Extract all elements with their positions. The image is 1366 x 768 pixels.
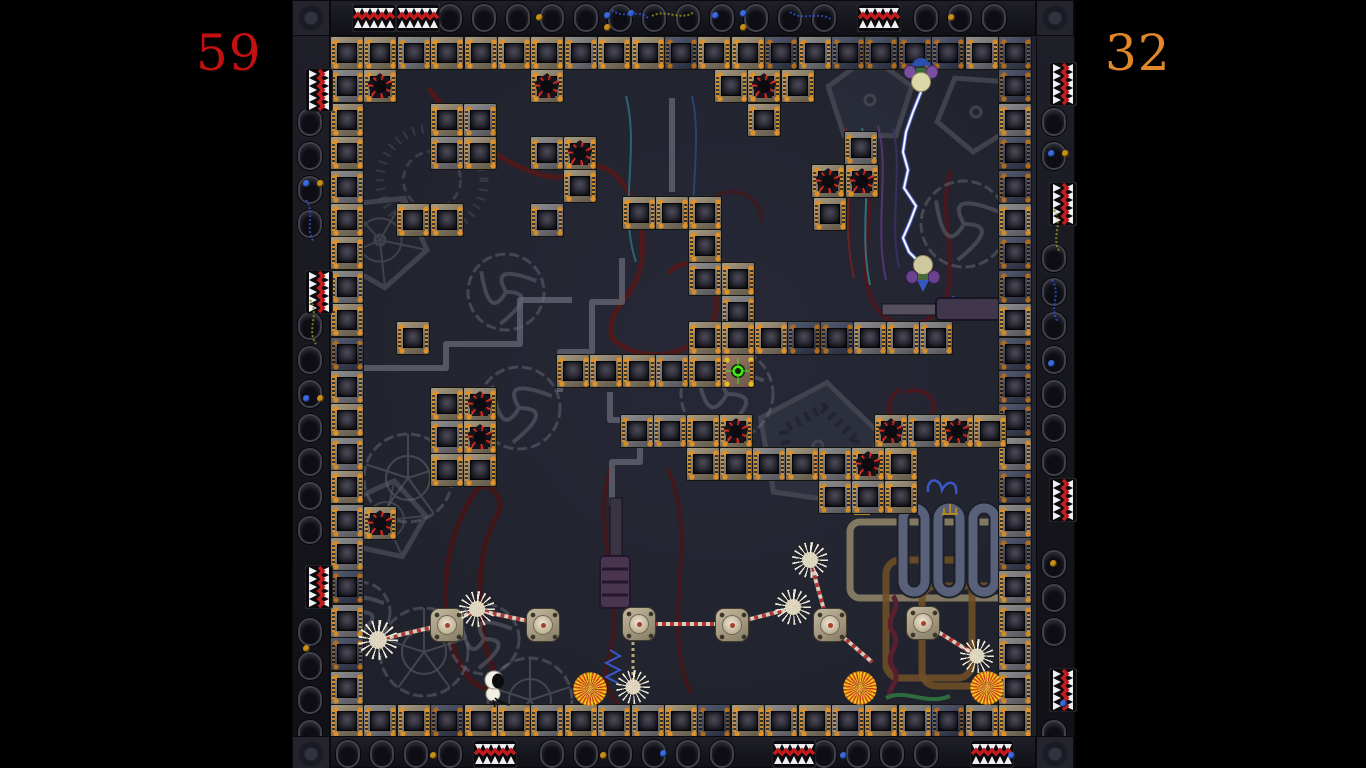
teeth-mouth-icon xyxy=(305,565,333,609)
tile-block xyxy=(853,321,887,355)
tile-hazard-fan xyxy=(747,69,781,103)
tile-center xyxy=(337,444,357,464)
tile-center xyxy=(738,711,758,731)
tile-center xyxy=(938,711,958,731)
tile-block xyxy=(919,321,953,355)
tile-block xyxy=(688,354,722,388)
tile-block xyxy=(998,370,1032,404)
tile-center xyxy=(470,110,490,130)
score-right: 32 xyxy=(1105,24,1171,82)
tile-center xyxy=(337,310,357,330)
tile-center xyxy=(695,203,715,223)
tile-block xyxy=(785,447,819,481)
tile-block xyxy=(430,136,464,170)
border-capsule xyxy=(744,4,768,32)
tile-block xyxy=(965,704,999,738)
teeth-mouth-icon xyxy=(772,740,816,768)
tile-block xyxy=(430,420,464,454)
border-corner xyxy=(292,736,330,768)
amber-dot-icon xyxy=(317,180,324,187)
tile-block xyxy=(330,36,364,70)
tile-center xyxy=(537,43,557,63)
border-capsule xyxy=(298,210,322,238)
tile-center xyxy=(537,711,557,731)
border-capsule xyxy=(506,4,530,32)
tile-block xyxy=(998,470,1032,504)
tile-block xyxy=(998,704,1032,738)
tile-block xyxy=(597,704,631,738)
tile-block xyxy=(397,704,431,738)
blue-dot-icon xyxy=(1048,150,1055,157)
teeth-mouth xyxy=(1049,478,1077,522)
border-capsule xyxy=(574,740,598,768)
tile-block xyxy=(396,321,430,355)
tile-center xyxy=(771,43,791,63)
tile-block xyxy=(330,136,364,170)
tile-block xyxy=(330,437,364,471)
tile-block xyxy=(564,36,598,70)
tile-block xyxy=(864,36,898,70)
border-capsule xyxy=(676,4,700,32)
tile-center xyxy=(1005,611,1025,631)
tile-block xyxy=(798,704,832,738)
tile-center xyxy=(914,421,934,441)
pod-tile xyxy=(906,606,940,640)
tile-block xyxy=(787,321,821,355)
tile-block xyxy=(622,196,656,230)
tile-block xyxy=(864,704,898,738)
tile-center xyxy=(337,76,357,96)
tile-block xyxy=(330,303,364,337)
tile-center xyxy=(627,421,647,441)
tile-block xyxy=(589,354,623,388)
tile-block xyxy=(820,321,854,355)
tile-center xyxy=(1005,110,1025,130)
tile-block xyxy=(998,337,1032,371)
border-capsule xyxy=(812,4,836,32)
tile-center xyxy=(337,344,357,364)
tile-center xyxy=(504,43,524,63)
amber-dot-icon xyxy=(1062,150,1069,157)
tile-center xyxy=(437,394,457,414)
tile-block xyxy=(898,704,932,738)
tile-center xyxy=(893,328,913,348)
tile-center xyxy=(662,361,682,381)
border-capsule xyxy=(298,414,322,442)
amber-dot-icon xyxy=(430,752,437,759)
tile-center xyxy=(563,361,583,381)
tile-center xyxy=(403,210,423,230)
tile-center xyxy=(470,143,490,163)
tile-center xyxy=(1005,644,1025,664)
tile-block xyxy=(655,354,689,388)
tile-block xyxy=(998,103,1032,137)
tile-exit-circuit xyxy=(721,354,755,388)
border-corner xyxy=(1036,736,1074,768)
tile-block xyxy=(597,36,631,70)
border-capsule xyxy=(298,312,322,340)
blue-dot-icon xyxy=(660,750,667,757)
tile-center xyxy=(571,711,591,731)
tile-block xyxy=(731,704,765,738)
tile-center xyxy=(471,43,491,63)
tile-center xyxy=(825,487,845,507)
tile-block xyxy=(430,36,464,70)
tile-block xyxy=(764,36,798,70)
tile-block xyxy=(330,236,364,270)
tile-center xyxy=(838,43,858,63)
tile-block xyxy=(851,480,885,514)
border-capsule xyxy=(1042,618,1066,646)
border-capsule xyxy=(1042,312,1066,340)
tile-block xyxy=(430,103,464,137)
tile-center xyxy=(972,711,992,731)
tile-center xyxy=(337,544,357,564)
tile-block xyxy=(463,103,497,137)
border-capsule xyxy=(298,618,322,646)
tile-center xyxy=(805,43,825,63)
tile-block xyxy=(330,69,364,103)
tile-block xyxy=(998,537,1032,571)
border-capsule xyxy=(298,652,322,680)
tile-center xyxy=(827,328,847,348)
tile-center xyxy=(871,43,891,63)
border-capsule xyxy=(676,740,700,768)
tile-center xyxy=(761,328,781,348)
teeth-mouth-icon xyxy=(305,68,333,112)
tile-block xyxy=(430,453,464,487)
player-creature[interactable] xyxy=(482,670,514,708)
spike-mine xyxy=(960,639,994,673)
tile-block xyxy=(430,203,464,237)
amber-dot-icon xyxy=(948,14,955,21)
tile-block xyxy=(844,131,878,165)
border-corner xyxy=(292,0,330,36)
tile-hazard-fan xyxy=(363,506,397,540)
tile-hazard-fan xyxy=(874,414,908,448)
border-capsule xyxy=(1042,244,1066,272)
tile-center xyxy=(693,421,713,441)
border-band-right xyxy=(1036,0,1075,768)
spike-mine xyxy=(616,670,650,704)
border-capsule xyxy=(982,4,1006,32)
tile-block xyxy=(764,704,798,738)
tile-block xyxy=(497,704,531,738)
tile-center xyxy=(695,328,715,348)
tile-block xyxy=(464,36,498,70)
player-creature-icon xyxy=(482,670,514,708)
border-capsule xyxy=(404,740,428,768)
tile-block xyxy=(998,604,1032,638)
tile-center xyxy=(693,454,713,474)
tile-center xyxy=(504,711,524,731)
teeth-mouth-icon xyxy=(305,270,333,314)
tile-block xyxy=(818,480,852,514)
teeth-mouth xyxy=(352,4,396,32)
tile-center xyxy=(1005,410,1025,430)
tile-block xyxy=(998,303,1032,337)
tile-block xyxy=(430,387,464,421)
tile-center xyxy=(792,454,812,474)
tile-block xyxy=(831,36,865,70)
border-capsule xyxy=(540,4,564,32)
tile-block xyxy=(330,504,364,538)
tile-center xyxy=(671,43,691,63)
bat-creature-bottom[interactable] xyxy=(906,254,940,292)
tile-center xyxy=(704,711,724,731)
tile-center xyxy=(660,421,680,441)
border-capsule xyxy=(778,4,802,32)
teeth-mouth xyxy=(857,4,901,32)
letterbox-right xyxy=(1075,0,1366,768)
tile-center xyxy=(404,711,424,731)
border-capsule xyxy=(574,4,598,32)
border-capsule xyxy=(1042,584,1066,612)
tile-center xyxy=(638,711,658,731)
tile-center xyxy=(337,611,357,631)
tile-block xyxy=(497,36,531,70)
tile-center xyxy=(891,454,911,474)
tile-block xyxy=(798,36,832,70)
border-capsule xyxy=(472,4,496,32)
tile-block xyxy=(655,196,689,230)
tile-center xyxy=(860,328,880,348)
amber-dot-icon xyxy=(1050,560,1057,567)
border-capsule xyxy=(1042,380,1066,408)
tile-block xyxy=(998,69,1032,103)
teeth-mouth xyxy=(772,740,816,768)
tile-center xyxy=(1005,577,1025,597)
tile-center xyxy=(695,269,715,289)
tile-block xyxy=(530,36,564,70)
tile-center xyxy=(437,427,457,447)
tile-block xyxy=(631,704,665,738)
spike-mine xyxy=(459,591,495,627)
tile-center xyxy=(337,511,357,531)
tile-block xyxy=(688,262,722,296)
border-capsule xyxy=(540,740,564,768)
blue-dot-icon xyxy=(604,12,611,19)
tile-center xyxy=(370,711,390,731)
tile-center xyxy=(1005,377,1025,397)
border-capsule xyxy=(846,740,870,768)
blue-dot-icon xyxy=(303,395,310,402)
pod-tile xyxy=(526,608,560,642)
tile-block xyxy=(330,203,364,237)
tile-hazard-fan xyxy=(563,136,597,170)
tile-center xyxy=(754,110,774,130)
blue-dot-icon xyxy=(1060,700,1067,707)
border-corner xyxy=(1036,0,1074,36)
tile-center xyxy=(337,711,357,731)
tile-center xyxy=(403,328,423,348)
tile-block xyxy=(631,36,665,70)
teeth-mouth xyxy=(1049,182,1077,226)
tile-center xyxy=(604,43,624,63)
pod-tile xyxy=(622,607,656,641)
tile-center xyxy=(788,76,808,96)
tile-block xyxy=(752,447,786,481)
border-capsule xyxy=(438,4,462,32)
border-capsule xyxy=(1042,346,1066,374)
tile-center xyxy=(1005,444,1025,464)
tile-block xyxy=(664,36,698,70)
tile-block xyxy=(330,270,364,304)
tile-block xyxy=(931,704,965,738)
tile-block xyxy=(686,447,720,481)
tile-block xyxy=(721,321,755,355)
tile-center xyxy=(858,487,878,507)
tile-center xyxy=(537,143,557,163)
tile-center xyxy=(771,711,791,731)
score-left: 59 xyxy=(196,24,262,82)
tile-block xyxy=(884,447,918,481)
tile-block xyxy=(664,704,698,738)
tile-block xyxy=(688,229,722,263)
teeth-mouth-icon xyxy=(396,4,440,32)
tile-center xyxy=(1005,678,1025,698)
teeth-mouth xyxy=(473,740,517,768)
tile-block xyxy=(697,36,731,70)
tile-block xyxy=(747,103,781,137)
border-capsule xyxy=(1042,108,1066,136)
tile-block xyxy=(563,169,597,203)
tile-center xyxy=(337,410,357,430)
tile-center xyxy=(1005,277,1025,297)
teeth-mouth-icon xyxy=(352,4,396,32)
tile-hazard-fan xyxy=(530,69,564,103)
border-band-left xyxy=(292,0,330,768)
border-capsule xyxy=(298,448,322,476)
tile-block xyxy=(998,637,1032,671)
border-capsule xyxy=(914,740,938,768)
border-capsule xyxy=(370,740,394,768)
tile-center xyxy=(1005,310,1025,330)
border-capsule xyxy=(1042,448,1066,476)
border-capsule xyxy=(1042,414,1066,442)
tile-center xyxy=(738,43,758,63)
tile-block xyxy=(998,136,1032,170)
tile-center xyxy=(825,454,845,474)
tile-block xyxy=(330,704,364,738)
tile-center xyxy=(1005,511,1025,531)
tile-center xyxy=(1005,177,1025,197)
tile-center xyxy=(337,277,357,297)
tile-center xyxy=(337,577,357,597)
teeth-mouth xyxy=(305,270,333,314)
tile-center xyxy=(972,43,992,63)
tile-block xyxy=(330,170,364,204)
letterbox-left xyxy=(0,0,292,768)
border-capsule xyxy=(880,740,904,768)
amber-dot-icon xyxy=(303,645,310,652)
tile-hazard-fan xyxy=(845,164,879,198)
tile-center xyxy=(728,269,748,289)
tile-center xyxy=(704,43,724,63)
amber-dot-icon xyxy=(536,14,543,21)
tile-center xyxy=(671,711,691,731)
tile-center xyxy=(1005,711,1025,731)
tile-center xyxy=(337,143,357,163)
teeth-mouth xyxy=(396,4,440,32)
tile-center xyxy=(1005,243,1025,263)
tile-center xyxy=(695,361,715,381)
tile-block xyxy=(886,321,920,355)
tile-block xyxy=(998,170,1032,204)
tile-center xyxy=(437,460,457,480)
blue-dot-icon xyxy=(840,752,847,759)
tile-block xyxy=(330,537,364,571)
border-capsule xyxy=(298,516,322,544)
tile-center xyxy=(938,43,958,63)
tile-block xyxy=(363,36,397,70)
teeth-mouth-icon xyxy=(1049,62,1077,106)
border-capsule xyxy=(608,740,632,768)
tile-center xyxy=(337,644,357,664)
amber-dot-icon xyxy=(740,24,747,31)
amber-dot-icon xyxy=(600,752,607,759)
border-band-top xyxy=(330,0,1036,36)
tile-block xyxy=(714,69,748,103)
tile-center xyxy=(370,43,390,63)
tile-block xyxy=(781,69,815,103)
tile-center xyxy=(571,43,591,63)
tile-block xyxy=(831,704,865,738)
blue-dot-icon xyxy=(628,10,635,17)
bat-creature-icon xyxy=(904,58,938,96)
psychedelic-orb xyxy=(573,672,607,706)
spike-mine xyxy=(792,542,828,578)
tile-center xyxy=(437,711,457,731)
bat-creature-top[interactable] xyxy=(904,58,938,96)
tile-block xyxy=(998,270,1032,304)
tile-center xyxy=(871,711,891,731)
tile-center xyxy=(629,361,649,381)
tile-center xyxy=(570,176,590,196)
teeth-mouth xyxy=(1049,62,1077,106)
tile-block xyxy=(330,470,364,504)
tile-center xyxy=(851,138,871,158)
tile-block xyxy=(998,570,1032,604)
psychedelic-orb xyxy=(843,671,877,705)
tile-hazard-fan xyxy=(363,69,397,103)
tile-center xyxy=(820,204,840,224)
tile-block xyxy=(907,414,941,448)
tile-center xyxy=(662,203,682,223)
tile-block xyxy=(965,36,999,70)
tile-center xyxy=(437,210,457,230)
tile-block xyxy=(884,480,918,514)
tile-center xyxy=(721,76,741,96)
tile-block xyxy=(731,36,765,70)
tile-center xyxy=(337,243,357,263)
tile-block xyxy=(396,203,430,237)
teeth-mouth xyxy=(305,565,333,609)
tile-center xyxy=(728,328,748,348)
tile-center xyxy=(604,711,624,731)
tile-block xyxy=(397,36,431,70)
game-viewport[interactable]: 59 32 xyxy=(0,0,1366,768)
bat-creature-icon xyxy=(906,254,940,292)
tile-hazard-fan xyxy=(940,414,974,448)
tile-center xyxy=(337,210,357,230)
exit-circuit-icon xyxy=(725,358,751,384)
tile-center xyxy=(805,711,825,731)
tile-center xyxy=(1005,76,1025,96)
tile-center xyxy=(404,43,424,63)
tile-center xyxy=(794,328,814,348)
tile-block xyxy=(530,203,564,237)
